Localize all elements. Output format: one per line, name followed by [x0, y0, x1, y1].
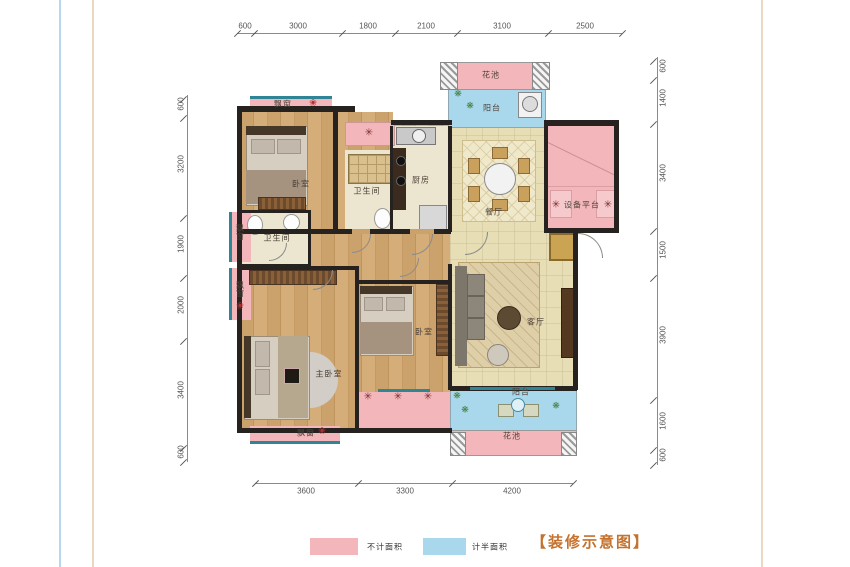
- room-label-bay-top: 飘窗: [274, 99, 292, 110]
- dim-label: 1800: [359, 22, 377, 31]
- ac-fan-icon: ✳: [424, 392, 432, 403]
- floorplan-page: { "title": {"text": "【装修示意图】", "color": …: [0, 0, 850, 567]
- pillow: [255, 369, 270, 395]
- sink-basin: [412, 129, 426, 143]
- legend-swatch-no-area: [310, 538, 358, 555]
- bed-headboard: [246, 126, 306, 135]
- room-label-bedroom-mid: 卧室: [415, 327, 433, 338]
- room-label-master: 主卧室: [316, 369, 343, 380]
- room-label-living: 客厅: [527, 317, 545, 328]
- ac-fan-icon: ✳: [604, 200, 612, 211]
- window-line: [378, 389, 430, 392]
- dining-chair: [518, 186, 530, 202]
- room-label-dining: 餐厅: [485, 207, 503, 218]
- wall-segment: [241, 266, 359, 270]
- room-label-bath-top: 卫生间: [354, 186, 381, 197]
- equipment-divider: [546, 186, 616, 187]
- shower-tray: [348, 154, 392, 184]
- plant-icon: ❋: [453, 391, 461, 402]
- sofa-cushion: [467, 296, 485, 318]
- frame-line-tan-right: [761, 0, 763, 567]
- room-label-bedroom-top: 卧室: [292, 179, 310, 190]
- stove-burner: [396, 156, 406, 166]
- dim-label: 3200: [177, 155, 186, 173]
- hatch-cap: [450, 432, 466, 456]
- room-label-balcony-top: 阳台: [483, 103, 501, 114]
- dim-label: 1400: [659, 89, 668, 107]
- dining-chair: [518, 158, 530, 174]
- wall-segment: [308, 210, 311, 267]
- dim-label: 600: [659, 59, 668, 72]
- bed-headboard: [244, 336, 251, 418]
- dim-label: 600: [177, 445, 186, 458]
- dim-label: 2100: [417, 22, 435, 31]
- dim-label: 600: [659, 448, 668, 461]
- wall-segment: [390, 126, 393, 230]
- legend-label-no-area: 不计面积: [367, 542, 403, 553]
- room-label-flower-bottom: 花池: [503, 431, 521, 442]
- balcony-table: [511, 398, 525, 412]
- dim-label: 1600: [659, 412, 668, 430]
- plant-icon: ❋: [552, 401, 560, 412]
- legend-label-half-area: 计半面积: [472, 542, 508, 553]
- ac-fan-icon: ✳: [365, 128, 373, 139]
- dim-label: 4200: [503, 487, 521, 496]
- pillow: [386, 297, 405, 311]
- side-chair: [487, 344, 509, 366]
- wall-segment: [333, 106, 338, 232]
- dim-label: 1900: [177, 235, 186, 253]
- dim-label: 600: [177, 97, 186, 110]
- ac-fan-icon: ✳: [394, 392, 402, 403]
- window-line: [250, 441, 340, 444]
- pillow: [364, 297, 383, 311]
- plant-icon: ❋: [466, 101, 474, 112]
- dining-chair: [468, 186, 480, 202]
- wall-segment: [544, 126, 548, 230]
- room-label-flower-top: 花池: [482, 70, 500, 81]
- ac-fan-icon: ✳: [552, 200, 560, 211]
- hatch-cap: [532, 62, 550, 90]
- stove-burner: [396, 176, 406, 186]
- washing-machine-drum: [522, 96, 538, 112]
- dim-label: 3600: [297, 487, 315, 496]
- hatch-cap: [561, 432, 577, 456]
- frame-line-tan-left: [92, 0, 94, 567]
- legend-swatch-half-area: [423, 538, 466, 555]
- dim-label: 2500: [576, 22, 594, 31]
- window-line: [229, 212, 232, 262]
- bed-headboard: [360, 286, 412, 294]
- pillow: [251, 139, 275, 154]
- blanket: [360, 322, 412, 354]
- frame-line-blue: [59, 0, 61, 567]
- wall-segment: [448, 126, 452, 232]
- dim-label: 1500: [659, 241, 668, 259]
- dim-label: 3900: [659, 326, 668, 344]
- wall-segment: [241, 210, 311, 213]
- dining-chair: [492, 147, 508, 159]
- dim-label: 3000: [289, 22, 307, 31]
- dim-label: 3400: [177, 381, 186, 399]
- dining-chair: [468, 158, 480, 174]
- entry-door-arc: [578, 233, 603, 258]
- plan-title: 【装修示意图】: [531, 531, 650, 552]
- room-label-kitchen: 厨房: [412, 175, 430, 186]
- plant-icon: ❋: [461, 405, 469, 416]
- blanket-emblem: [284, 368, 300, 384]
- wall-segment: [448, 264, 452, 390]
- sofa-back: [455, 266, 467, 366]
- dim-label: 3100: [493, 22, 511, 31]
- dim-label: 600: [238, 22, 251, 31]
- room-label-bath-mid: 卫生间: [264, 233, 291, 244]
- coffee-table: [497, 306, 521, 330]
- toilet: [374, 208, 391, 229]
- room-label-bay-left-1: 飘窗: [235, 224, 246, 240]
- dim-label: 3300: [396, 487, 414, 496]
- wall-segment: [544, 120, 619, 126]
- dining-table: [484, 163, 516, 195]
- room-label-bay-bottom: 飘窗: [297, 428, 315, 439]
- ac-fan-icon: ✳: [364, 392, 372, 403]
- pillow: [255, 341, 270, 367]
- wall-segment: [391, 120, 452, 125]
- balcony-seat: [523, 404, 539, 417]
- fridge: [419, 205, 447, 231]
- wall-segment: [614, 120, 619, 232]
- sofa-cushion: [467, 318, 485, 340]
- room-label-balcony-bottom: 阳台: [512, 387, 530, 398]
- rug-striped: [258, 197, 306, 210]
- hatch-cap: [440, 62, 458, 90]
- room-label-equipment: 设备平台: [564, 200, 600, 211]
- window-line: [229, 268, 232, 320]
- wall-segment: [355, 266, 359, 432]
- dim-label: 2000: [177, 296, 186, 314]
- dim-label: 3400: [659, 164, 668, 182]
- room-label-bay-left-2: 飘窗: [235, 281, 246, 297]
- wall-segment: [355, 280, 450, 284]
- flower-icon: ❀: [236, 301, 244, 312]
- pillow: [277, 139, 301, 154]
- flower-icon: ❀: [318, 426, 326, 437]
- plant-icon: ❋: [454, 89, 462, 100]
- sofa-cushion: [467, 274, 485, 296]
- wall-segment: [355, 428, 452, 433]
- flower-icon: ❀: [309, 98, 317, 109]
